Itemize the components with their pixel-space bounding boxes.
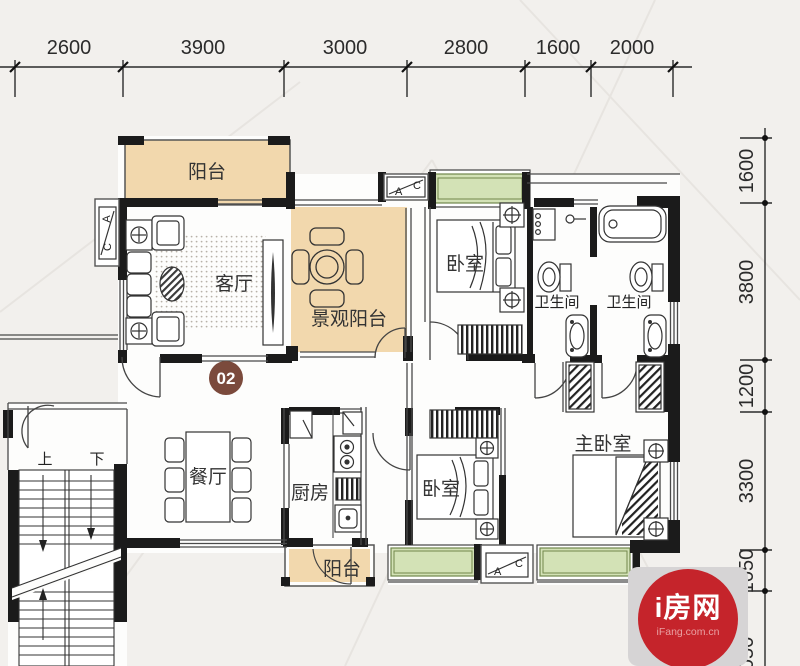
dim-top-6: 2000 (610, 37, 655, 59)
wardrobe (458, 325, 522, 354)
balcony-bottom: 阳台 (281, 545, 375, 586)
stairs-up-label: 上 (37, 451, 52, 468)
dim-top-5: 1600 (536, 37, 581, 59)
dim-top-3: 3000 (323, 37, 368, 59)
ac-label-a: A (101, 215, 113, 223)
site-logo-title: i房网 (638, 593, 738, 624)
ac-label-c: C (515, 558, 523, 570)
ac-unit-bottom: A C (481, 545, 533, 583)
room-label-bedroom-top: 卧室 (446, 253, 484, 275)
floor-plan-page: 2600 3900 3000 2800 1600 2000 1600 3800 … (0, 0, 800, 666)
dim-right-2: 3800 (736, 260, 758, 305)
dim-right-1: 1600 (736, 149, 758, 194)
unit-badge: 02 (209, 361, 243, 395)
room-label-bedroom-bottom: 卧室 (422, 478, 460, 500)
living-room (126, 216, 283, 346)
dim-right-4: 3300 (736, 459, 758, 504)
sofa (127, 252, 151, 273)
stairs (12, 470, 121, 666)
bay-window-bottom-right (537, 545, 633, 580)
ac-label-a: A (395, 186, 403, 198)
dim-top-4: 2800 (444, 37, 489, 59)
shower-icon (566, 215, 574, 223)
cabinet (290, 411, 312, 438)
room-label-master: 主卧室 (574, 433, 631, 455)
coffee-table (160, 267, 184, 301)
dim-top-2: 3900 (181, 37, 226, 59)
ac-label-a: A (494, 566, 502, 578)
top-ruler: 2600 3900 3000 2800 1600 2000 (0, 37, 692, 97)
room-label-kitchen: 厨房 (291, 482, 329, 504)
ac-unit-top: A C (384, 174, 428, 200)
site-logo-circle: i房网 iFang.com.cn (638, 569, 738, 666)
room-label-balcony-bottom: 阳台 (323, 558, 361, 580)
ac-label-c: C (102, 243, 114, 251)
toilet-tank (560, 264, 571, 291)
bay-window-top-bedroom (430, 170, 530, 207)
stairs-down-label: 下 (89, 451, 104, 468)
master-bedroom (573, 440, 668, 540)
ac-unit-left: A C (95, 199, 119, 266)
site-logo-domain: iFang.com.cn (638, 626, 738, 638)
wardrobe (430, 410, 498, 438)
site-logo: i房网 iFang.com.cn (628, 567, 748, 666)
balcony-top-left: 阳台 (118, 136, 290, 204)
room-label-dining: 餐厅 (189, 466, 227, 488)
room-label-bath-right: 卫生间 (606, 294, 651, 311)
toilet-tank (652, 264, 663, 291)
room-label-balcony-top: 阳台 (188, 161, 226, 183)
room-label-view-balcony: 景观阳台 (311, 308, 387, 330)
ac-label-c: C (413, 180, 421, 192)
dim-top-1: 2600 (47, 37, 92, 59)
vent (336, 478, 360, 500)
dim-right-3: 1200 (736, 364, 758, 409)
room-label-living: 客厅 (215, 273, 253, 295)
bay-window-bottom-left (388, 545, 478, 580)
room-label-bath-left: 卫生间 (534, 294, 579, 311)
unit-badge-label: 02 (217, 369, 236, 388)
